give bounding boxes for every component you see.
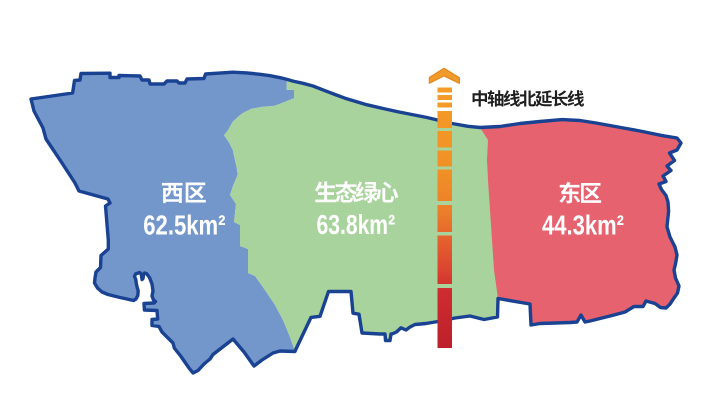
svg-text:63.8km²: 63.8km² xyxy=(317,209,396,240)
svg-text:44.3km²: 44.3km² xyxy=(542,209,624,240)
svg-text:62.5km²: 62.5km² xyxy=(143,210,225,241)
